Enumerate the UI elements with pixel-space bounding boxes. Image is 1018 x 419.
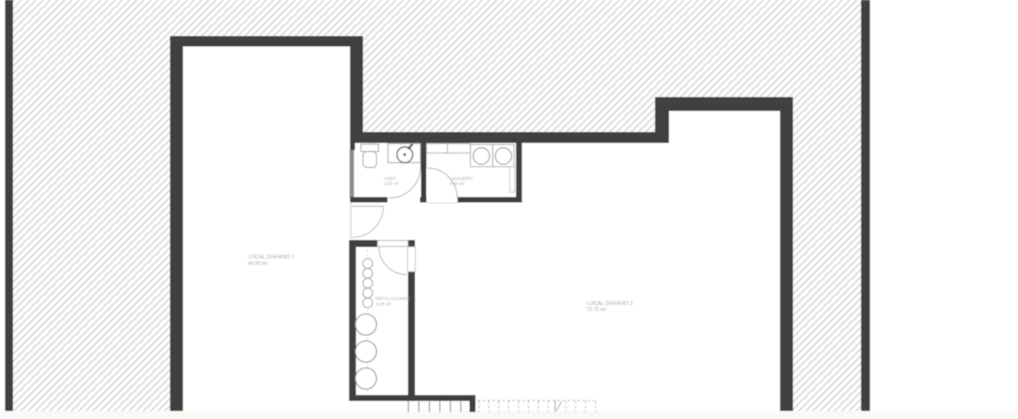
svg-text:3.44 m²: 3.44 m² — [450, 181, 465, 186]
svg-text:72.75 m²: 72.75 m² — [587, 307, 607, 313]
svg-text:2.50 m²: 2.50 m² — [384, 181, 399, 186]
svg-text:INSTALACIONES: INSTALACIONES — [375, 296, 410, 301]
svg-text:LOCAL DIAFANO 1: LOCAL DIAFANO 1 — [248, 255, 294, 261]
svg-text:44.80 m²: 44.80 m² — [248, 261, 268, 267]
svg-text:5.08 m²: 5.08 m² — [376, 302, 391, 307]
